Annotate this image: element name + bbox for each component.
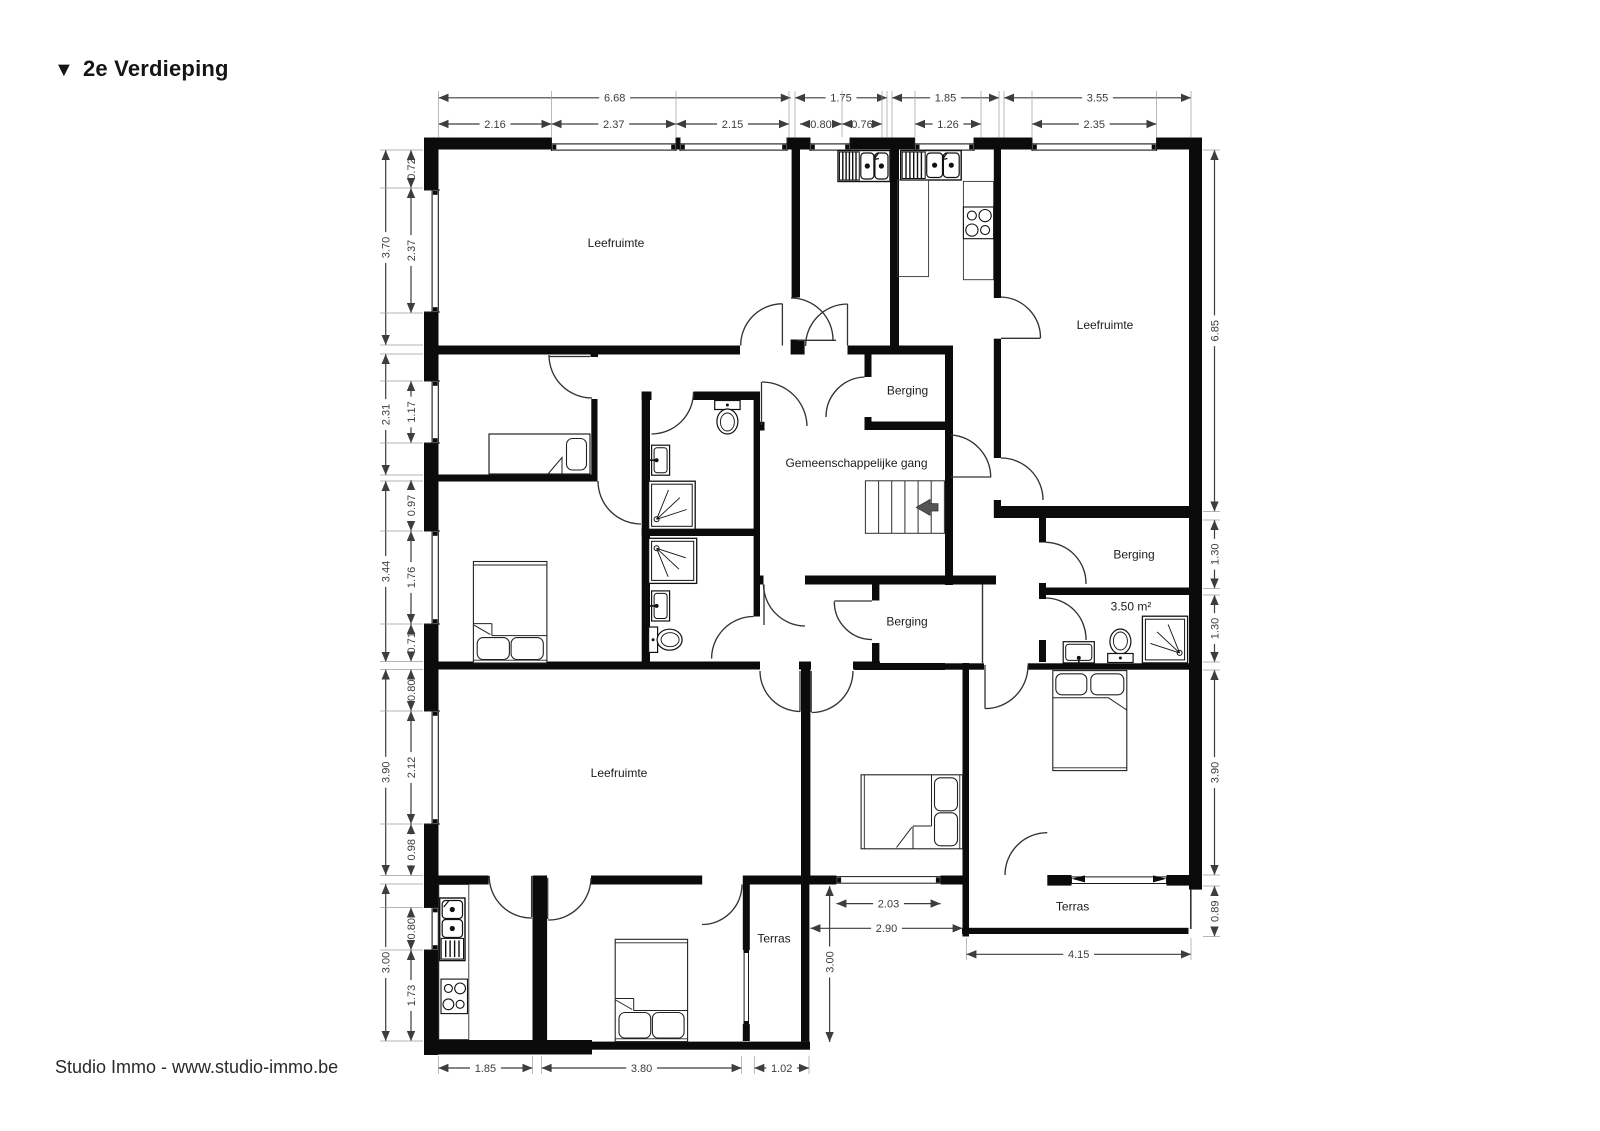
svg-text:2.16: 2.16: [484, 119, 505, 131]
svg-text:1.26: 1.26: [937, 119, 958, 131]
svg-text:3.44: 3.44: [381, 561, 393, 582]
svg-text:3.00: 3.00: [824, 951, 836, 972]
svg-text:0.80: 0.80: [810, 119, 831, 131]
svg-text:2.15: 2.15: [722, 119, 743, 131]
svg-text:0.72: 0.72: [406, 158, 418, 179]
svg-text:3.80: 3.80: [631, 1063, 652, 1075]
svg-text:0.80: 0.80: [406, 918, 418, 939]
svg-text:1.85: 1.85: [935, 93, 956, 105]
svg-text:3.70: 3.70: [381, 237, 393, 258]
svg-text:Leefruimte: Leefruimte: [591, 766, 648, 780]
svg-text:2.90: 2.90: [876, 923, 897, 935]
svg-text:2.03: 2.03: [878, 898, 899, 910]
svg-text:Berging: Berging: [886, 615, 927, 629]
svg-text:Terras: Terras: [1056, 900, 1089, 914]
svg-text:1.75: 1.75: [830, 93, 851, 105]
svg-text:2.31: 2.31: [381, 404, 393, 425]
svg-text:2.37: 2.37: [406, 240, 418, 261]
svg-text:1.73: 1.73: [406, 985, 418, 1006]
svg-text:Berging: Berging: [1113, 548, 1154, 562]
svg-text:Leefruimte: Leefruimte: [588, 236, 645, 250]
svg-text:0.80: 0.80: [406, 680, 418, 701]
svg-text:3.00: 3.00: [381, 952, 393, 973]
svg-text:Leefruimte: Leefruimte: [1077, 318, 1134, 332]
svg-text:Berging: Berging: [887, 384, 928, 398]
svg-text:1.17: 1.17: [406, 401, 418, 422]
svg-text:1.76: 1.76: [406, 567, 418, 588]
svg-text:1.85: 1.85: [475, 1063, 496, 1075]
svg-text:2.35: 2.35: [1084, 119, 1105, 131]
svg-text:1.02: 1.02: [771, 1063, 792, 1075]
svg-text:Terras: Terras: [757, 932, 790, 946]
svg-text:4.15: 4.15: [1068, 949, 1089, 961]
svg-text:0.71: 0.71: [406, 632, 418, 653]
svg-text:1.30: 1.30: [1209, 618, 1221, 639]
svg-text:3.50 m²: 3.50 m²: [1111, 600, 1152, 614]
svg-text:1.30: 1.30: [1209, 544, 1221, 565]
svg-text:2.37: 2.37: [603, 119, 624, 131]
svg-text:Gemeenschappelijke gang: Gemeenschappelijke gang: [785, 456, 927, 470]
svg-text:6.68: 6.68: [604, 93, 625, 105]
svg-text:2.12: 2.12: [406, 757, 418, 778]
svg-text:0.89: 0.89: [1209, 901, 1221, 922]
svg-text:3.90: 3.90: [381, 762, 393, 783]
svg-text:0.97: 0.97: [406, 495, 418, 516]
svg-text:0.76: 0.76: [851, 119, 872, 131]
svg-text:3.55: 3.55: [1087, 93, 1108, 105]
svg-text:6.85: 6.85: [1209, 320, 1221, 341]
svg-text:0.98: 0.98: [406, 839, 418, 860]
svg-text:3.90: 3.90: [1209, 762, 1221, 783]
